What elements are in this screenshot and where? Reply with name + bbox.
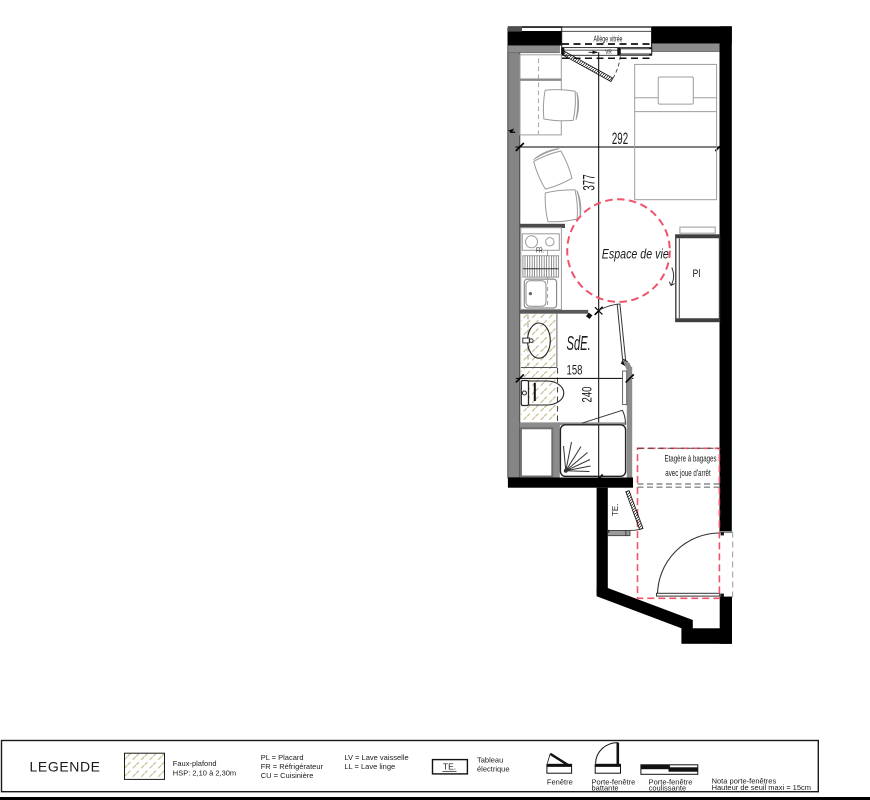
- svg-text:LV = Lave vaisselle: LV = Lave vaisselle: [344, 753, 408, 762]
- svg-text:158: 158: [567, 362, 583, 378]
- svg-text:SdE.: SdE.: [567, 333, 591, 355]
- svg-text:Pl: Pl: [693, 268, 701, 280]
- svg-text:avec joue d'arrêt: avec joue d'arrêt: [665, 468, 711, 479]
- svg-text:Allège vitrée: Allège vitrée: [594, 35, 623, 43]
- svg-text:377: 377: [579, 174, 599, 190]
- svg-text:Faux-plafond: Faux-plafond: [173, 759, 217, 768]
- svg-text:PL = Placard: PL = Placard: [261, 753, 304, 762]
- svg-text:électrique: électrique: [477, 765, 510, 774]
- svg-text:Tableau: Tableau: [477, 756, 503, 765]
- svg-text:LEGENDE: LEGENDE: [30, 759, 101, 775]
- svg-text:battante: battante: [592, 784, 619, 793]
- svg-text:HSP: 2,10 à 2,30m: HSP: 2,10 à 2,30m: [173, 769, 236, 778]
- svg-text:CU = Cuisinière: CU = Cuisinière: [261, 771, 314, 780]
- svg-text:Hauteur de seuil maxi = 15cm: Hauteur de seuil maxi = 15cm: [712, 783, 811, 792]
- svg-text:Espace de vie: Espace de vie: [602, 246, 669, 262]
- svg-text:FR.: FR.: [536, 247, 544, 255]
- svg-text:240: 240: [579, 386, 595, 402]
- svg-text:FR = Réfrigérateur: FR = Réfrigérateur: [261, 762, 324, 771]
- svg-text:Etagère à bagages: Etagère à bagages: [664, 453, 716, 464]
- svg-text:TE.: TE.: [443, 762, 456, 772]
- svg-text:coulissante: coulissante: [649, 784, 687, 793]
- svg-text:VR: VR: [605, 49, 611, 56]
- svg-text:LL = Lave linge: LL = Lave linge: [344, 762, 395, 771]
- svg-text:Fenêtre: Fenêtre: [547, 778, 573, 787]
- svg-text:TE.: TE.: [611, 504, 620, 516]
- svg-text:292: 292: [612, 128, 628, 148]
